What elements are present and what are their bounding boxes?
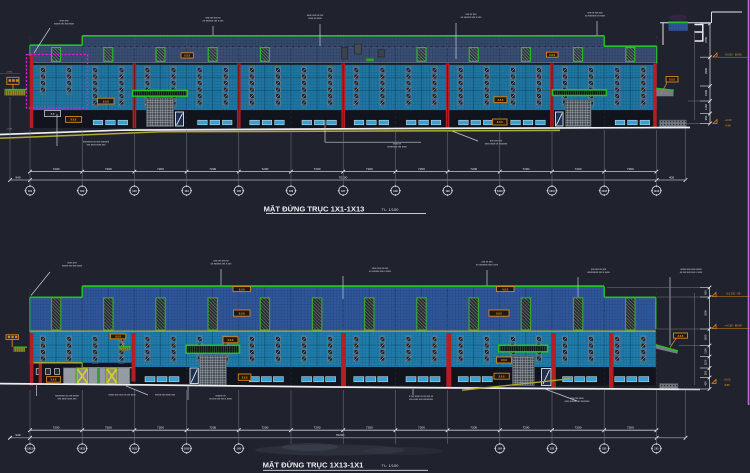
svg-text:7200: 7200 [314,167,321,171]
svg-text:88 8888888 888 8 888: 88 8888888 888 8 888 [476,265,499,267]
svg-text:+10.150 - 88: +10.150 - 88 [726,292,741,296]
svg-text:888 88 888: 888 88 888 [466,14,478,16]
svg-text:888 8888 8888 888: 888 8888 8888 888 [58,399,78,401]
svg-text:400: 400 [669,175,674,179]
svg-text:7200: 7200 [418,167,425,171]
svg-text:888 888 8888: 888 888 8888 [570,398,584,400]
svg-text:1500: 1500 [704,90,708,96]
svg-text:8.8.8: 8.8.8 [678,334,684,338]
svg-text:888 888 888 88: 888 888 888 88 [213,261,229,263]
svg-text:1X9: 1X9 [237,448,242,451]
svg-text:888888888 888 8 8888: 888888888 888 8 8888 [587,272,610,274]
svg-text:3750: 3750 [704,37,708,43]
svg-text:8.8.8: 8.8.8 [501,358,507,362]
svg-text:8888 888: 8888 888 [59,21,69,23]
svg-text:8.8.8: 8.8.8 [103,99,109,103]
svg-text:8.8.8: 8.8.8 [239,287,245,291]
svg-text:8.8.8: 8.8.8 [115,335,121,339]
svg-text:7200: 7200 [209,167,216,171]
svg-text:888 888 88 888: 888 888 88 888 [591,269,607,271]
svg-text:1X11: 1X11 [132,448,138,451]
svg-text:1X3: 1X3 [550,448,555,451]
svg-text:888888 88: 888888 88 [215,396,226,398]
svg-text:8.8.8: 8.8.8 [498,98,504,102]
svg-text:7200: 7200 [627,167,634,171]
svg-text:888 888 888: 888 888 888 [490,141,503,143]
svg-text:8 888 8888 88 88 888 88: 8 888 8888 88 88 888 88 [409,396,434,398]
svg-text:8.8.8: 8.8.8 [71,118,77,122]
svg-text:MẶT ĐỨNG TRỤC 1X13-1X1: MẶT ĐỨNG TRỤC 1X13-1X1 [263,461,365,470]
svg-text:8.88: 8.88 [725,124,731,128]
svg-text:7200: 7200 [418,425,425,429]
svg-text:7200: 7200 [105,425,112,429]
svg-text:7200: 7200 [157,425,164,429]
svg-text:7200: 7200 [522,167,529,171]
svg-text:940: 940 [15,175,20,179]
svg-text:88 888888 888 8 8888: 88 888888 888 8 8888 [369,271,392,273]
svg-text:7200: 7200 [470,425,477,429]
svg-text:TL: 1/150: TL: 1/150 [382,207,400,212]
svg-text:1150: 1150 [704,104,708,110]
svg-text:1X2: 1X2 [80,190,85,193]
svg-text:88 8888888 88 8888: 88 8888888 88 8888 [585,16,606,18]
svg-text:888 88 888 888: 888 88 888 888 [587,13,603,15]
svg-text:8.8.8: 8.8.8 [549,53,555,57]
svg-text:1X1: 1X1 [654,448,659,451]
svg-text:1X13: 1X13 [27,448,33,451]
svg-text:8888 8888 88 8888888: 8888 8888 88 8888888 [485,144,508,146]
svg-text:8888 88: 8888 88 [393,144,402,146]
svg-text:1X11: 1X11 [549,190,555,193]
svg-text:1X10: 1X10 [184,448,190,451]
svg-text:8888 888 88 888: 8888 888 88 888 [307,15,324,17]
svg-text:88 888 888 888 8 8888: 88 888 888 888 8 8888 [209,399,232,401]
svg-text:7200: 7200 [366,167,373,171]
svg-text:7200: 7200 [575,167,582,171]
svg-text:TL: 1/150: TL: 1/150 [382,463,400,468]
svg-text:+8.88: +8.88 [6,72,12,74]
svg-text:7200: 7200 [261,167,268,171]
svg-text:1X9: 1X9 [445,190,450,193]
svg-text:+0.00: +0.00 [725,118,732,122]
svg-text:8.8: 8.8 [51,112,55,116]
svg-text:88 888888 888 8 888: 88 888888 888 8 888 [211,264,232,266]
svg-text:7200: 7200 [53,167,60,171]
svg-text:88888 888 888 88 888 8888: 88888 888 888 88 888 8888 [108,395,136,397]
svg-text:7200: 7200 [575,425,582,429]
svg-text:1X4: 1X4 [498,448,503,451]
svg-text:7200: 7200 [53,425,60,429]
svg-text:8.8.8: 8.8.8 [502,287,508,291]
svg-text:600: 600 [704,290,708,295]
svg-text:8888 888 88 888: 8888 888 88 888 [372,268,389,270]
svg-text:7200: 7200 [314,425,321,429]
svg-text:+0.00: +0.00 [724,378,731,382]
svg-text:7200: 7200 [470,167,477,171]
svg-text:8.8.8: 8.8.8 [669,78,675,82]
svg-text:1150: 1150 [704,359,708,365]
svg-text:888 88 888: 888 88 888 [482,262,494,264]
svg-text:1X12: 1X12 [601,190,607,193]
svg-text:950: 950 [704,370,708,375]
svg-text:88 888 888 888 8 8888: 88 888 888 888 8 8888 [680,272,703,274]
svg-text:+8.000 - 88 88: +8.000 - 88 88 [725,53,742,57]
svg-text:1X12: 1X12 [79,448,85,451]
svg-text:1X2: 1X2 [602,448,607,451]
svg-text:1X1: 1X1 [28,190,33,193]
svg-text:88888 888 8888 888: 88888 888 8888 888 [155,395,176,397]
svg-text:88 888888 888 8 888: 88 888888 888 8 888 [203,21,224,23]
svg-text:888 8888 8888 888: 888 8888 8888 888 [87,145,107,147]
svg-text:950: 950 [704,115,708,120]
svg-text:88888 888 888 8888: 88888 888 888 8888 [54,24,75,26]
svg-text:7200: 7200 [209,425,216,429]
svg-text:1X10: 1X10 [497,190,503,193]
svg-text:8.8.8: 8.8.8 [239,311,245,315]
svg-text:8888 88888 888 8888888: 8888 88888 888 8888888 [565,401,591,403]
svg-text:MẶT ĐỨNG TRỤC 1X1-1X13: MẶT ĐỨNG TRỤC 1X1-1X13 [264,205,365,214]
svg-text:88888888 88 888 88888: 88888888 88 888 88888 [55,396,80,398]
svg-text:8.8.8: 8.8.8 [184,54,190,58]
svg-text:1X8: 1X8 [393,190,398,193]
svg-text:+4.150 - 88 88: +4.150 - 88 88 [725,324,742,328]
svg-text:88888 888 888 8888: 88888 888 888 8888 [62,266,83,268]
svg-text:8.88: 8.88 [724,383,730,387]
svg-text:8.8.8: 8.8.8 [497,120,503,124]
svg-text:888 8888 888 88888888: 888 8888 888 88888888 [409,399,434,401]
svg-text:8.8.8: 8.8.8 [228,338,234,342]
svg-text:1X6: 1X6 [289,190,294,193]
svg-text:1X4: 1X4 [184,190,189,193]
svg-text:450: 450 [704,381,708,386]
svg-text:7200: 7200 [366,425,373,429]
svg-text:1X3: 1X3 [132,190,137,193]
svg-text:7200: 7200 [105,167,112,171]
svg-text:8888 88 8888: 8888 88 8888 [308,18,322,20]
svg-text:7200: 7200 [261,425,268,429]
svg-text:8888 888: 8888 888 [67,263,77,265]
svg-text:88 888888 888 8 888: 88 888888 888 8 888 [461,17,482,19]
svg-text:1650: 1650 [704,334,708,340]
svg-text:1X13: 1X13 [654,190,660,193]
svg-text:888 888 888 88: 888 888 888 88 [205,18,221,20]
svg-text:8.8.8: 8.8.8 [499,374,505,378]
svg-text:8.8.8: 8.8.8 [496,311,502,315]
svg-text:88888888 88 888 8888888: 88888888 88 888 8888888 [83,142,110,144]
svg-text:+8.88: +8.88 [6,129,12,131]
svg-text:7200: 7200 [627,425,634,429]
svg-text:2900: 2900 [704,68,708,74]
svg-text:7200: 7200 [522,425,529,429]
svg-text:1X7: 1X7 [341,190,346,193]
svg-text:8.8.8: 8.8.8 [51,378,57,382]
svg-text:88888888 888 8888: 88888888 888 8888 [387,147,407,149]
svg-text:8.8.8: 8.8.8 [242,375,248,379]
svg-text:940: 940 [15,433,20,437]
svg-text:1100: 1100 [704,348,708,354]
svg-text:3200: 3200 [704,310,708,316]
svg-text:7200: 7200 [157,167,164,171]
svg-text:1X5: 1X5 [237,190,242,193]
svg-text:88888 888 888 88888: 88888 888 888 88888 [680,269,702,271]
